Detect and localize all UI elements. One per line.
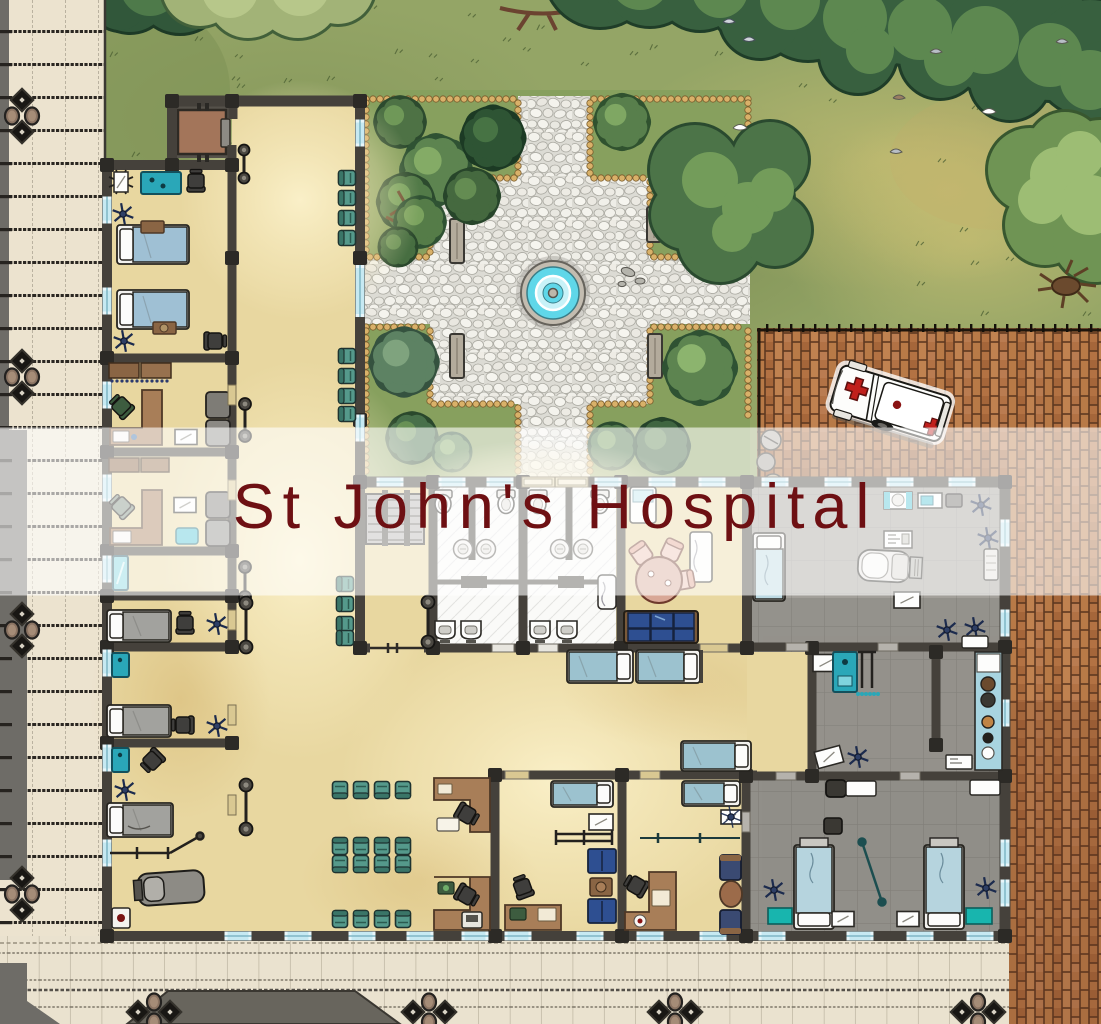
- svg-text:St John's Hospital: St John's Hospital: [233, 472, 877, 542]
